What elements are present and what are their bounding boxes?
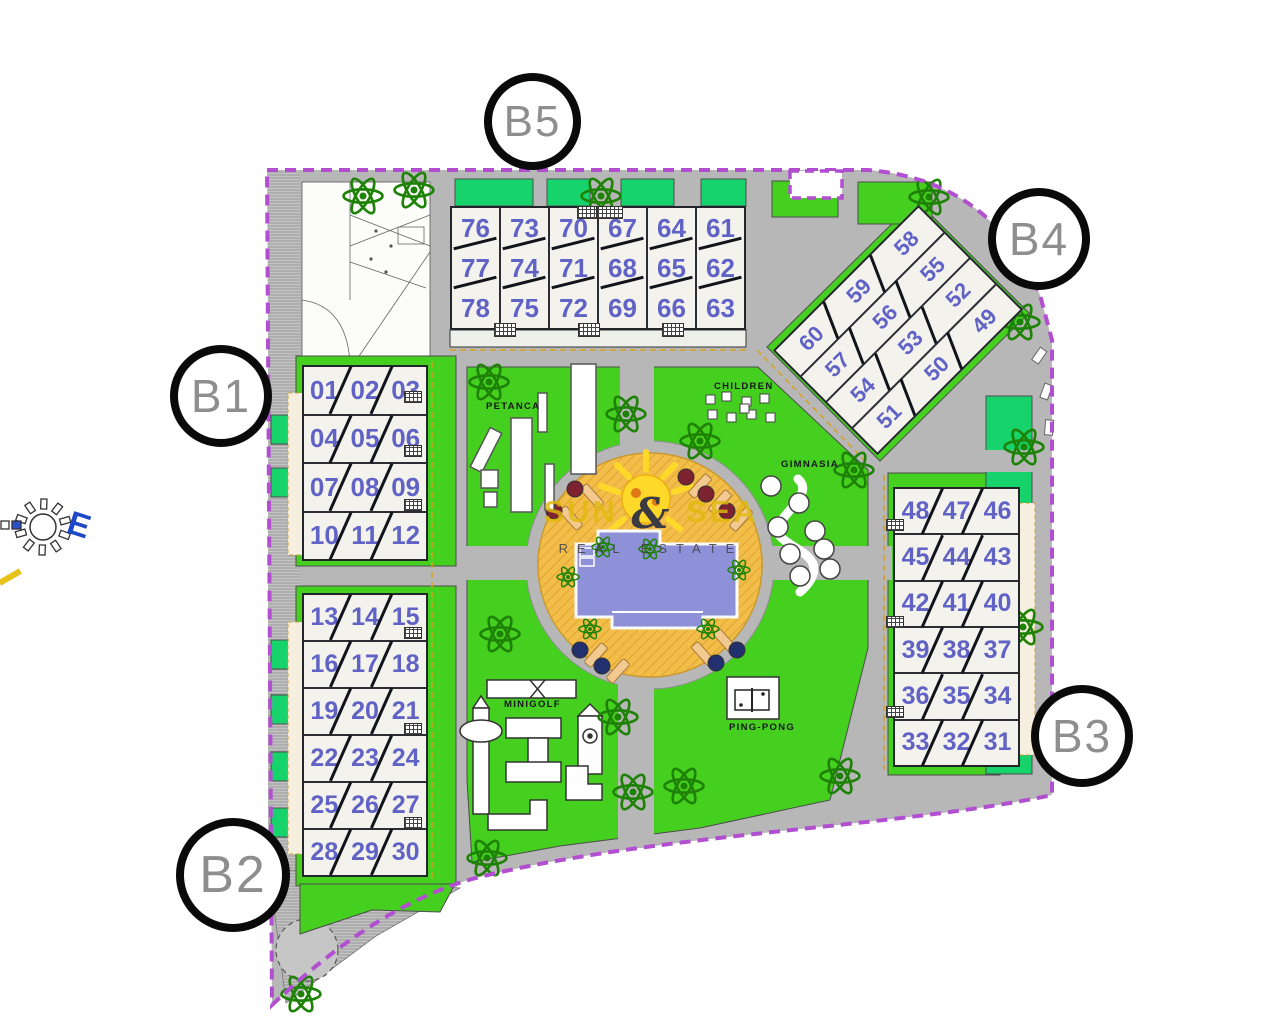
unit-number: 63: [697, 288, 744, 328]
stairs-icon: [662, 323, 684, 337]
unit-number: 37: [977, 628, 1018, 672]
stairs-icon: [404, 627, 422, 639]
unit-stack: 67 68 69: [597, 208, 646, 328]
compass-icon: [0, 499, 71, 586]
site-plan: 76 77 78 73 74 75 70 71 72: [0, 0, 1280, 1024]
entrance-dashed-rect: [790, 171, 842, 198]
stairs-icon: [577, 206, 597, 219]
stairs-icon: [404, 391, 422, 403]
unit-number: 43: [977, 535, 1018, 579]
unit-number: 34: [977, 674, 1018, 718]
unit-row: 28 29 30: [304, 828, 426, 875]
unit-number: 78: [452, 288, 499, 328]
block-marker-b4: B4: [988, 188, 1090, 290]
unit-stack: 73 74 75: [499, 208, 548, 328]
amenity-label-children: CHILDREN: [714, 381, 773, 392]
unit-number: 18: [385, 642, 426, 687]
unit-row: 39 38 37: [895, 626, 1018, 672]
unit-row: 48 47 46: [895, 489, 1018, 533]
unit-number: 40: [977, 582, 1018, 626]
block-marker-b1: B1: [170, 345, 272, 447]
amenity-label-pingpong: PING-PONG: [729, 722, 795, 733]
unit-number: 30: [385, 830, 426, 875]
unit-row: 36 35 34: [895, 672, 1018, 718]
unit-row: 16 17 18: [304, 640, 426, 687]
unit-row: 22 23 24: [304, 734, 426, 781]
stairs-icon: [597, 206, 623, 219]
amenity-label-petanca: PETANCA: [486, 401, 540, 412]
unit-row: 45 44 43: [895, 533, 1018, 579]
unit-number: 75: [501, 288, 548, 328]
watermark-ampersand: &: [629, 489, 674, 538]
unit-stack: 70 71 72: [548, 208, 597, 328]
watermark-word-sun: SUN: [543, 494, 617, 529]
building-b3: 48 47 46 45 44 43 42 41 40: [893, 487, 1020, 767]
amenity-label-minigolf: MINIGOLF: [504, 699, 561, 710]
unit-row: 10 11 12: [304, 511, 426, 560]
block-marker-b3: B3: [1031, 685, 1133, 787]
unit-stack: 64 65 66: [646, 208, 695, 328]
stairs-icon: [886, 616, 904, 628]
stairs-icon: [578, 323, 600, 337]
unit-number: 24: [385, 736, 426, 781]
unit-number: 69: [599, 288, 646, 328]
stairs-icon: [404, 499, 422, 511]
ping-pong-table: [727, 677, 779, 719]
stairs-icon: [404, 817, 422, 829]
unit-number: 66: [648, 288, 695, 328]
stairs-icon: [494, 323, 516, 337]
unit-row: 42 41 40: [895, 580, 1018, 626]
stairs-icon: [404, 723, 422, 735]
unit-row: 33 32 31: [895, 719, 1018, 765]
stairs-icon: [886, 519, 904, 531]
unit-number: 31: [977, 721, 1018, 765]
stairs-icon: [404, 445, 422, 457]
unit-number: 12: [385, 513, 426, 560]
amenity-label-gimnasia: GIMNASIA: [781, 459, 839, 470]
building-b5: 76 77 78 73 74 75 70 71 72: [450, 206, 746, 330]
block-marker-b5: B5: [484, 73, 581, 170]
unit-number: 46: [977, 489, 1018, 533]
watermark: SUN & SEA REAL ESTATE: [538, 492, 764, 556]
stairs-icon: [886, 706, 904, 718]
unit-number: 72: [550, 288, 597, 328]
watermark-subtitle: REAL ESTATE: [538, 542, 764, 556]
watermark-word-sea: SEA: [686, 494, 759, 529]
watermark-brand: SUN & SEA: [538, 492, 764, 536]
unit-stack: 76 77 78: [452, 208, 499, 328]
block-marker-b2: B2: [176, 818, 290, 932]
unit-stack: 61 62 63: [695, 208, 744, 328]
